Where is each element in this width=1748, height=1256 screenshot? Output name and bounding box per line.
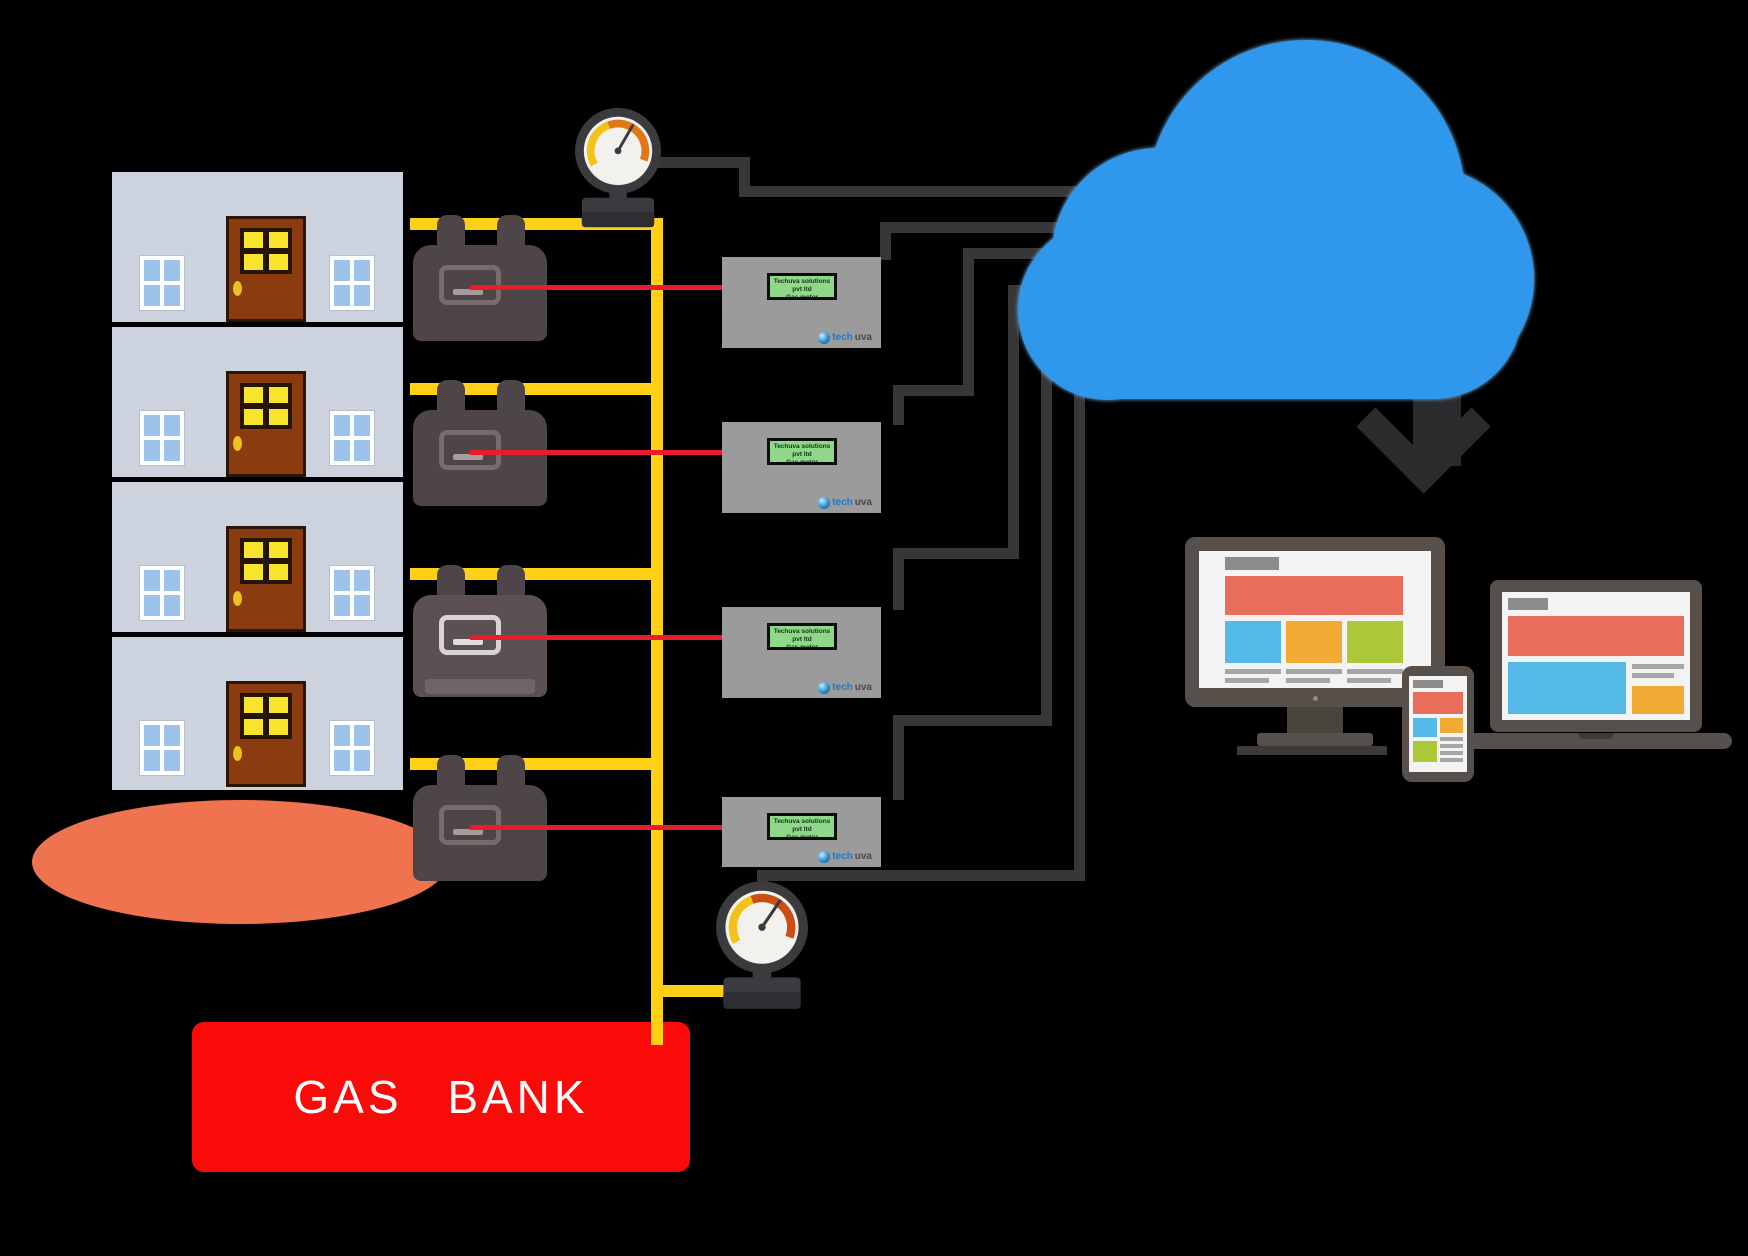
cloud-base (1030, 223, 1522, 399)
display-line1: Techuva solutions pvt ltd (770, 443, 834, 459)
floor-2 (112, 327, 403, 477)
monitor-screen (1199, 551, 1431, 688)
door-window-icon (240, 538, 292, 584)
globe-icon (818, 332, 830, 344)
meter-base (425, 679, 535, 694)
meter-body (413, 785, 547, 881)
text-line (1440, 737, 1463, 741)
gas-bank-label: GAS BANK (293, 1070, 588, 1124)
data-link-box4 (893, 715, 904, 800)
gas-metering-diagram: Techuva solutions pvt ltd Gas meter tech… (0, 0, 1748, 1256)
transmitter-display: Techuva solutions pvt ltd Gas meter (767, 438, 837, 465)
floor-3 (112, 482, 403, 632)
monitor-stand (1287, 707, 1343, 734)
webpage-tile (1413, 718, 1437, 737)
door-icon (226, 681, 306, 787)
text-line (1632, 664, 1684, 669)
laptop-screen (1502, 592, 1690, 720)
transmitter-box-2: Techuva solutions pvt ltd Gas meter tech… (722, 422, 881, 513)
power-led (1313, 696, 1318, 701)
webpage-header-bar (1225, 557, 1279, 570)
pressure-gauge-icon (574, 104, 662, 231)
display-line2: Gas meter (770, 294, 834, 300)
phone-screen (1409, 676, 1467, 772)
doorknob-icon (233, 436, 242, 451)
webpage-tile (1347, 621, 1403, 663)
transmitter-display: Techuva solutions pvt ltd Gas meter (767, 623, 837, 650)
door-icon (226, 371, 306, 477)
floor-4 (112, 637, 403, 790)
data-link-box2 (963, 248, 974, 396)
gas-meter-icon-1 (413, 215, 547, 347)
monitor-base (1257, 733, 1373, 746)
webpage-tile (1508, 662, 1626, 714)
display-line2: Gas meter (770, 459, 834, 465)
monitor-base-shadow (1237, 746, 1387, 755)
webpage-banner (1225, 576, 1403, 615)
doorknob-icon (233, 281, 242, 296)
door-window-icon (240, 383, 292, 429)
techuva-logo: techuva (818, 332, 872, 344)
transmitter-box-1: Techuva solutions pvt ltd Gas meter tech… (722, 257, 881, 348)
globe-icon (818, 497, 830, 509)
data-link-gauge1 (650, 157, 750, 168)
gas-bank: GAS BANK (192, 1022, 690, 1172)
display-line1: Techuva solutions pvt ltd (770, 628, 834, 644)
door-window-icon (240, 228, 292, 274)
transmitter-display: Techuva solutions pvt ltd Gas meter (767, 273, 837, 300)
gas-meter-icon-4 (413, 755, 547, 887)
door-icon (226, 216, 306, 322)
ground-ellipse (32, 800, 448, 924)
window-icon (140, 721, 184, 775)
transmitter-box-3: Techuva solutions pvt ltd Gas meter tech… (722, 607, 881, 698)
doorknob-icon (233, 746, 242, 761)
window-icon (140, 256, 184, 310)
gas-meter-icon-3 (413, 565, 547, 697)
text-line (1225, 669, 1281, 674)
globe-icon (818, 851, 830, 863)
gas-meter-icon-2 (413, 380, 547, 512)
text-line (1347, 669, 1403, 674)
text-line (1225, 678, 1269, 683)
smartphone-icon (1402, 666, 1474, 782)
webpage-banner (1508, 616, 1684, 656)
display-line1: Techuva solutions pvt ltd (770, 278, 834, 294)
cloud-icon (1010, 30, 1535, 405)
text-line (1440, 758, 1463, 762)
text-line (1286, 669, 1342, 674)
text-line (1440, 751, 1463, 755)
webpage-header-bar (1508, 598, 1548, 610)
door-icon (226, 526, 306, 632)
webpage-banner (1413, 692, 1463, 714)
webpage-tile (1286, 621, 1342, 663)
data-link-gauge2 (1074, 345, 1085, 881)
techuva-logo: techuva (818, 497, 872, 509)
door-window-icon (240, 693, 292, 739)
display-line2: Gas meter (770, 644, 834, 650)
doorknob-icon (233, 591, 242, 606)
gas-pipe-riser (651, 222, 663, 1045)
transmitter-box-4: Techuva solutions pvt ltd Gas meter tech… (722, 797, 881, 867)
transmitter-display: Techuva solutions pvt ltd Gas meter (767, 813, 837, 840)
webpage-tile (1413, 741, 1437, 762)
window-icon (330, 256, 374, 310)
meter-body (413, 595, 547, 697)
window-icon (330, 721, 374, 775)
meter-body (413, 245, 547, 341)
display-line2: Gas meter (770, 834, 834, 840)
window-icon (330, 566, 374, 620)
globe-icon (818, 682, 830, 694)
data-link-box4 (893, 715, 1052, 726)
laptop-notch (1578, 733, 1614, 739)
webpage-tile (1225, 621, 1281, 663)
display-line1: Techuva solutions pvt ltd (770, 818, 834, 834)
text-line (1286, 678, 1330, 683)
webpage-header-bar (1413, 680, 1443, 688)
webpage-tile (1440, 718, 1463, 733)
signal-line-3 (470, 635, 722, 640)
signal-line-4 (470, 825, 722, 830)
window-icon (330, 411, 374, 465)
text-line (1347, 678, 1391, 683)
signal-line-2 (470, 450, 722, 455)
apartment-building (112, 172, 403, 790)
signal-line-1 (470, 285, 722, 290)
window-icon (140, 566, 184, 620)
window-icon (140, 411, 184, 465)
pressure-gauge-icon (715, 877, 809, 1013)
meter-body (413, 410, 547, 506)
data-link-box2 (893, 385, 974, 396)
laptop-icon (1490, 580, 1702, 732)
techuva-logo: techuva (818, 851, 872, 863)
data-link-box3 (893, 548, 1019, 559)
text-line (1632, 673, 1674, 678)
floor-1 (112, 172, 403, 322)
text-line (1440, 744, 1463, 748)
techuva-logo: techuva (818, 682, 872, 694)
webpage-tile (1632, 686, 1684, 714)
